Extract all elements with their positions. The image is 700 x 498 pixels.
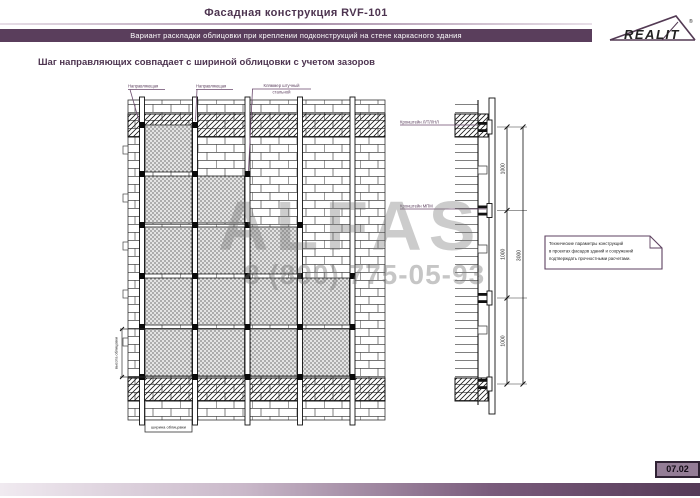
panel [145, 176, 192, 223]
note-line2: в проектах фасадов зданий и сооружений [549, 249, 634, 254]
rail-section [489, 98, 495, 414]
width-dimension-label: ширина облицовки [151, 425, 186, 430]
rail-callout-1: Направляющая [128, 84, 158, 89]
panel [198, 278, 245, 325]
dimension-chain: 1000 1000 1000 3000 [497, 125, 527, 387]
logo-registered-mark: ® [689, 18, 693, 25]
rail-callout-2: Направляющая [196, 84, 226, 89]
wall-edge-notches [123, 146, 128, 346]
page-number-badge: 07.02 [655, 461, 700, 478]
dim-1000-1: 1000 [501, 163, 507, 174]
panel [145, 227, 192, 274]
dim-1000-3: 1000 [501, 335, 507, 346]
page-title: Фасадная конструкция RVF-101 [0, 7, 592, 19]
panel [145, 278, 192, 325]
clamp-callout-line2: стальной [273, 90, 292, 95]
panel [198, 329, 245, 376]
drawing-heading: Шаг направляющих совпадает с шириной обл… [38, 57, 375, 68]
subtitle-bar: Вариант раскладки облицовки при креплени… [0, 29, 592, 42]
watermark-brand: ALFAS [218, 186, 482, 266]
clamp-callout-line1: Кляммер штучный [264, 83, 301, 88]
realit-logo: REALIT ® [606, 10, 698, 48]
panel [145, 125, 192, 172]
floor-slab-bottom [128, 378, 385, 401]
bracket-top-callout: Кронштейн Л/ТЛ/НЛ [400, 120, 439, 125]
panel [250, 329, 297, 376]
document-page: Фасадная конструкция RVF-101 Вариант рас… [0, 0, 700, 498]
panel [145, 329, 192, 376]
watermark-phone: 8 (800) 775-05-93 [244, 259, 485, 291]
dim-1000-2: 1000 [501, 248, 507, 259]
note-line3: подтверждать прочностными расчетами. [549, 256, 631, 261]
logo-wordmark: REALIT [624, 27, 680, 42]
header-separator [0, 23, 592, 25]
slab-section-top [455, 114, 488, 137]
note-line1: Технические параметры конструкций [549, 241, 624, 246]
subtitle-text: Вариант раскладки облицовки при креплени… [0, 29, 592, 42]
dim-3000: 3000 [517, 250, 523, 261]
panel [303, 329, 350, 376]
bracket [479, 291, 493, 305]
note-box: Технические параметры конструкций в прое… [545, 236, 662, 269]
height-dimension-label: высота облицовки [115, 337, 119, 369]
footer-bar [0, 483, 700, 496]
